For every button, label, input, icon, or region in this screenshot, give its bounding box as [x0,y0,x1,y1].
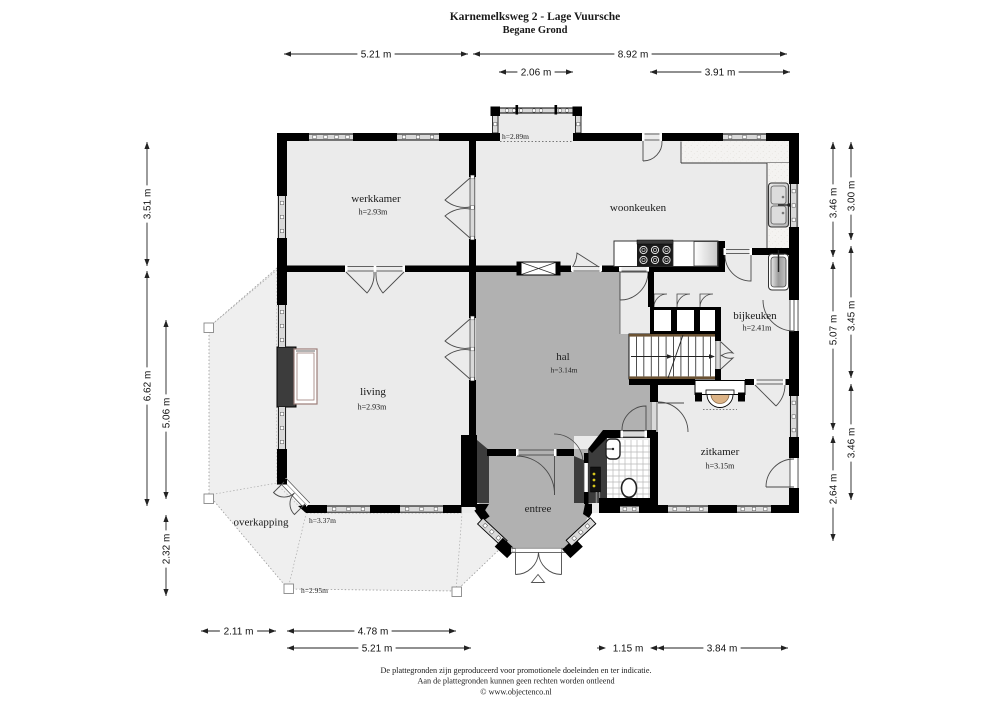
svg-text:hal: hal [556,351,569,363]
svg-text:3.00 m: 3.00 m [847,181,858,212]
svg-text:zitkamer: zitkamer [701,446,740,458]
svg-text:De plattegronden zijn geproduc: De plattegronden zijn geproduceerd voor … [381,666,652,675]
svg-text:bijkeuken: bijkeuken [733,310,777,322]
svg-text:h=2.93m: h=2.93m [358,403,388,412]
svg-text:Begane Grond: Begane Grond [503,25,568,36]
svg-text:3.45 m: 3.45 m [847,301,858,332]
svg-text:woonkeuken: woonkeuken [610,202,667,214]
svg-text:entree: entree [525,503,552,515]
svg-text:h=3.15m: h=3.15m [706,462,736,471]
svg-text:1.15 m: 1.15 m [613,644,644,655]
svg-text:h=3.37m: h=3.37m [309,516,336,525]
svg-text:living: living [360,386,386,398]
svg-text:3.91 m: 3.91 m [705,68,736,79]
svg-text:3.84 m: 3.84 m [707,644,738,655]
svg-text:h=2.89m: h=2.89m [502,132,529,141]
svg-text:h=2.41m: h=2.41m [743,324,773,333]
svg-text:6.62 m: 6.62 m [143,371,154,402]
svg-text:5.21 m: 5.21 m [362,644,393,655]
svg-text:© www.objectenco.nl: © www.objectenco.nl [480,688,552,697]
svg-text:h=2.93m: h=2.93m [359,208,389,217]
svg-text:5.06 m: 5.06 m [162,398,173,429]
svg-text:Aan de plattegronden kunnen ge: Aan de plattegronden kunnen geen rechten… [417,677,614,686]
svg-text:overkapping: overkapping [234,517,289,529]
svg-text:5.21 m: 5.21 m [361,50,392,61]
svg-text:3.46 m: 3.46 m [847,428,858,459]
svg-text:8.92 m: 8.92 m [618,50,649,61]
svg-text:3.46 m: 3.46 m [829,188,840,219]
svg-text:2.11 m: 2.11 m [224,627,254,638]
svg-text:h=3.14m: h=3.14m [551,366,578,375]
svg-text:werkkamer: werkkamer [351,193,401,205]
svg-text:2.64 m: 2.64 m [829,474,840,505]
svg-text:5.07 m: 5.07 m [829,315,840,346]
svg-text:2.06 m: 2.06 m [521,68,552,79]
svg-text:2.32 m: 2.32 m [162,534,173,565]
svg-text:4.78 m: 4.78 m [358,627,389,638]
svg-text:Karnemelksweg 2 - Lage Vuursch: Karnemelksweg 2 - Lage Vuursche [450,11,621,23]
svg-text:3.51 m: 3.51 m [143,189,154,220]
svg-text:h=2.95m: h=2.95m [301,586,328,595]
